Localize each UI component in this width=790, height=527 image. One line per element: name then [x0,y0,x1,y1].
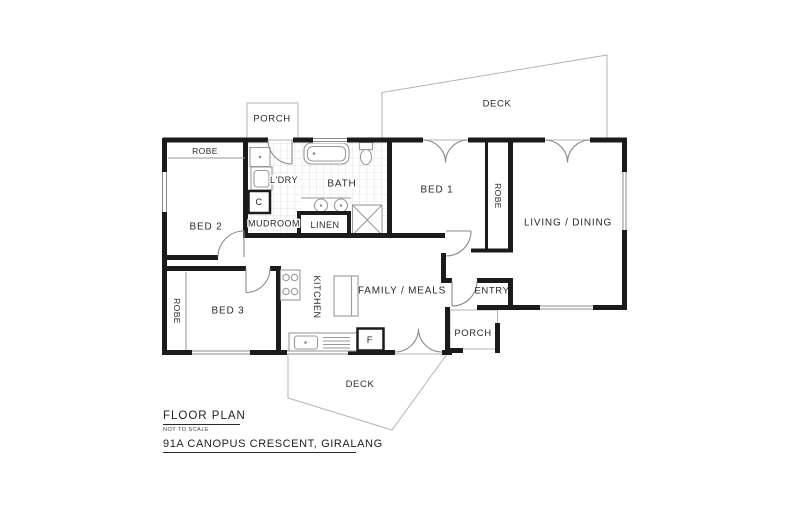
room-label-family-meals: FAMILY / MEALS [358,286,446,297]
entry-door [452,281,477,306]
fridge-label: F [367,335,373,346]
room-label-bed1: BED 1 [421,185,454,196]
room-label-laundry: L'DRY [270,175,298,185]
laundry-tub [250,148,270,167]
island-bench [334,276,358,316]
bed1-deck-double-doors [423,140,468,163]
room-label-linen: LINEN [310,220,339,230]
property-address: 91A CANOPUS CRESCENT, GIRALANG [163,438,383,450]
front-porch-label: PORCH [454,328,491,339]
room-label-living-dining: LIVING / DINING [524,218,612,229]
robe-bed2-label: ROBE [192,146,218,156]
toilet [360,143,373,165]
top-porch-label: PORCH [253,114,290,125]
room-label-kitchen: KITCHEN [312,275,322,318]
floor-plan-page: ROBE BED 2 BED 3 ROBE L'DRY C MUDROOM BA… [0,0,790,527]
bed1-door [446,231,471,256]
cupboard-label: C [256,197,263,207]
windows [162,137,628,356]
shower [353,205,383,235]
living-deck-double-doors [545,140,590,163]
plan-heading: FLOOR PLAN [163,410,246,422]
sink-unit [289,333,358,351]
room-label-bed3: BED 3 [212,306,245,317]
room-label-mudroom: MUDROOM [248,219,300,229]
outdoor-areas [247,55,607,430]
bed3-door [246,269,270,293]
bed2-door [218,231,244,257]
walls [163,138,627,355]
top-deck-outline [382,55,607,140]
robe-bed1-label: ROBE [493,183,503,209]
bottom-deck-label: DECK [346,379,375,390]
family-deck-double-doors [395,329,442,353]
room-label-bath: BATH [327,179,356,190]
stove-cooktop [281,270,301,300]
room-label-entry: ENTRY [474,286,509,297]
room-label-bed2: BED 2 [190,222,223,233]
floor-plan-canvas: ROBE BED 2 BED 3 ROBE L'DRY C MUDROOM BA… [0,0,790,527]
robe-bed3-label: ROBE [172,298,182,324]
bottom-deck-outline [288,354,447,430]
top-deck-label: DECK [483,99,512,110]
scale-note: NOT TO SCALE [163,427,209,433]
washing-machine [251,167,272,190]
